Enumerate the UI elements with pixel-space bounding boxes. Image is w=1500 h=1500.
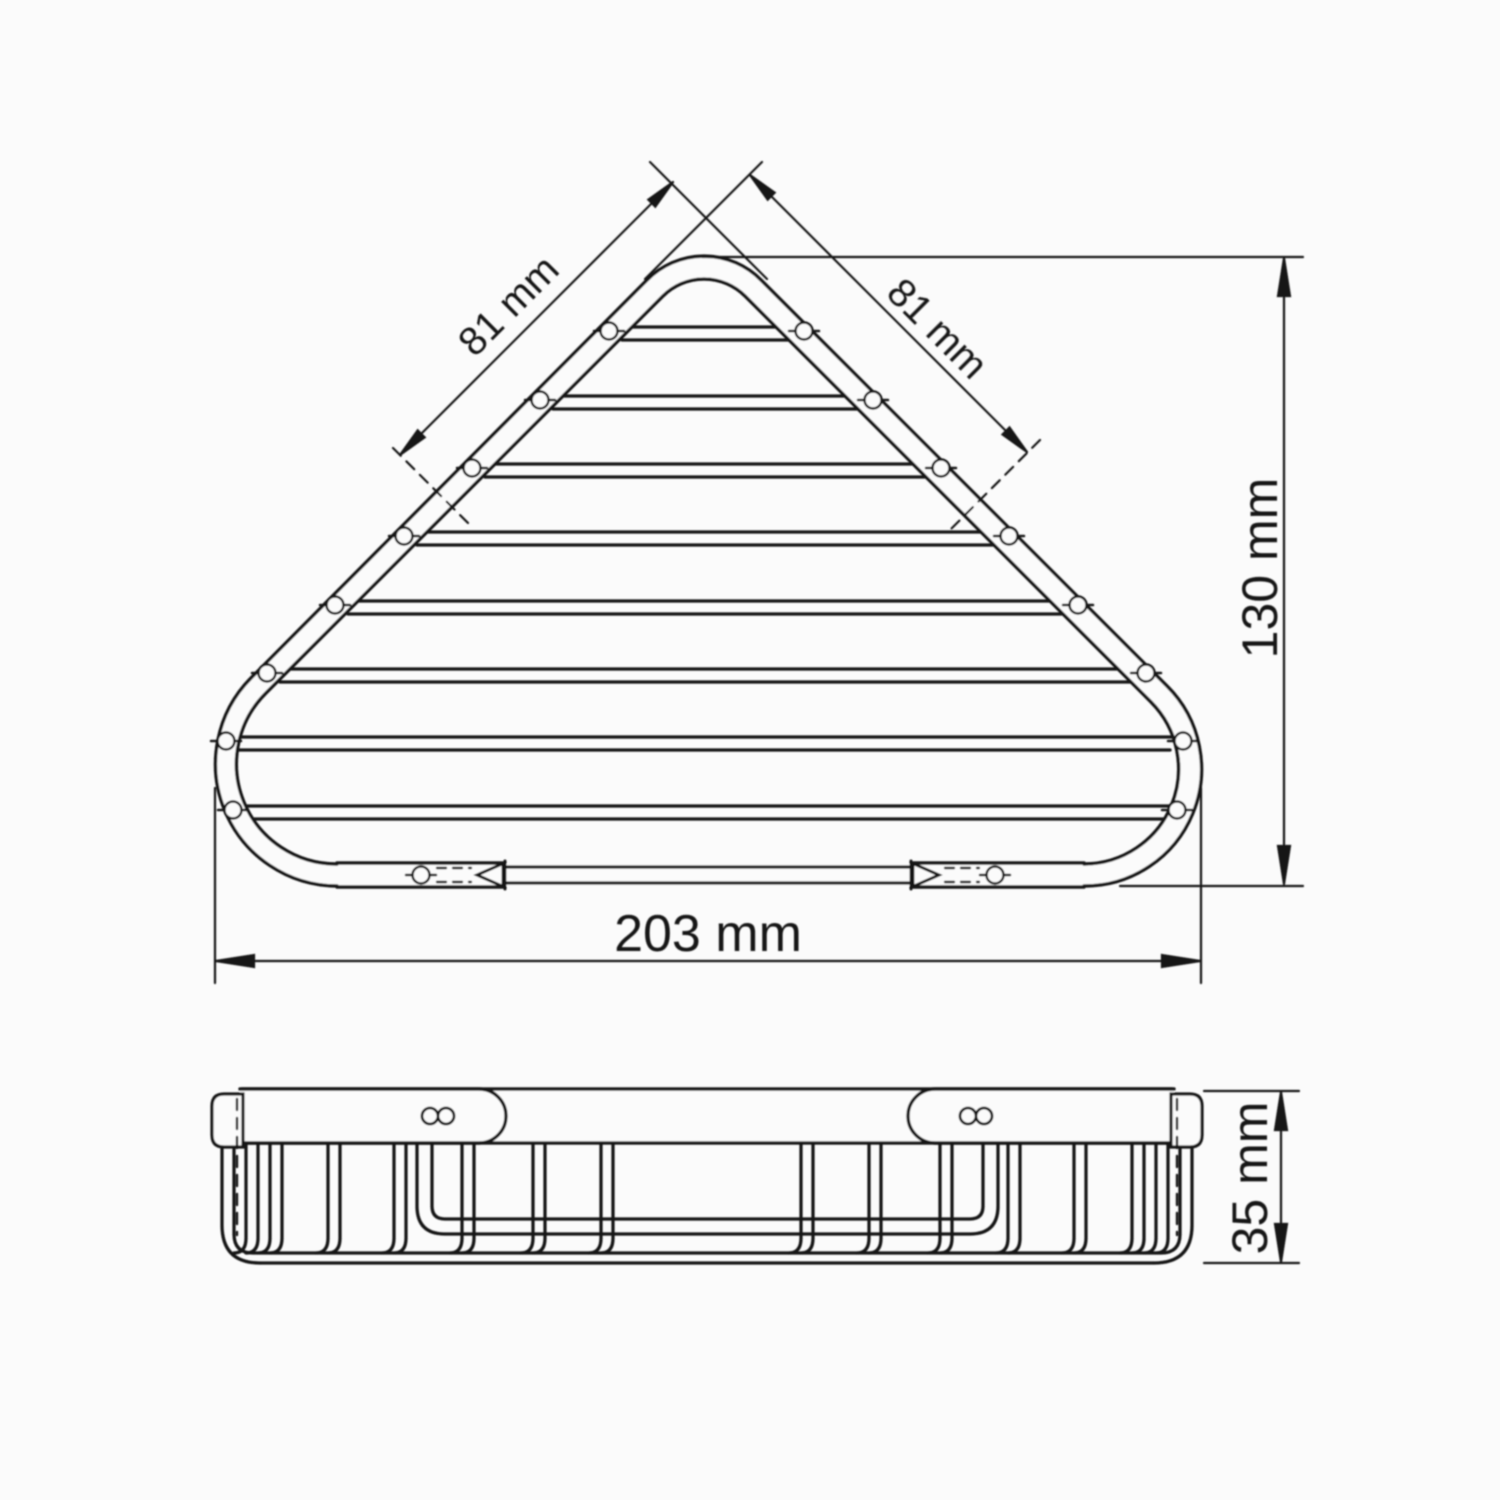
svg-text:35 mm: 35 mm [1222,1102,1278,1255]
svg-text:203 mm: 203 mm [614,905,802,963]
svg-text:130 mm: 130 mm [1232,478,1288,659]
